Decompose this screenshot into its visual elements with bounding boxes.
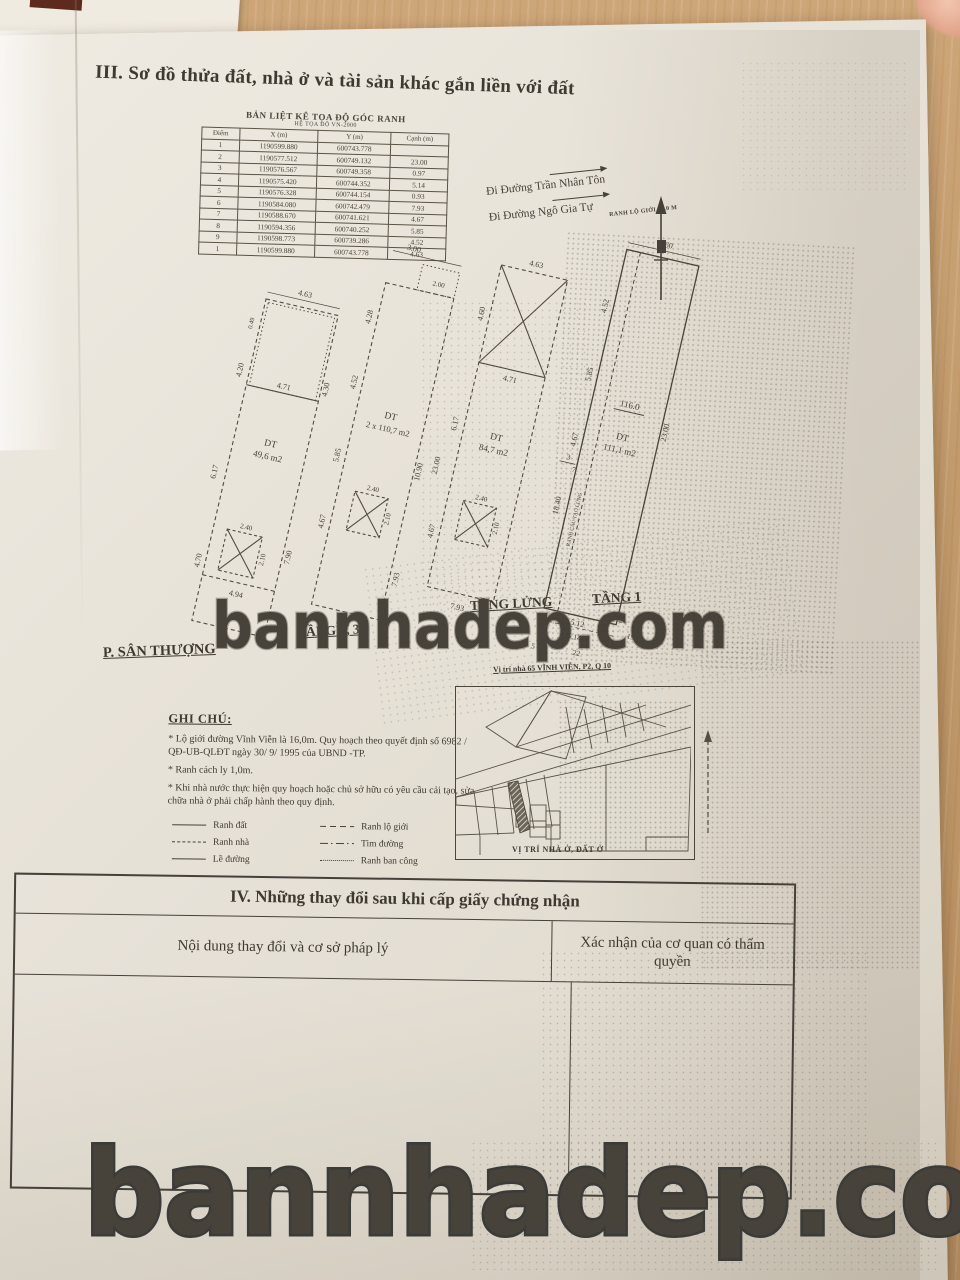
note-item: * Lộ giới đường Vĩnh Viễn là 16,0m. Quy … — [168, 733, 476, 762]
dim-label: 2.00 — [432, 279, 446, 290]
dim-label: 0.49 — [247, 317, 256, 330]
legend-item: Ranh nhà — [172, 833, 320, 852]
section4-col1-header: Nội dung thay đổi và cơ sở pháp lý — [15, 914, 552, 981]
area-label: 49,6 m2 — [252, 448, 283, 464]
dim-label: 4.71 — [276, 381, 292, 393]
dim-label: 4.28 — [363, 309, 375, 325]
photocopy-noise — [700, 640, 920, 970]
dim-label: 4.20 — [234, 362, 246, 378]
dim-label: 5.85 — [331, 447, 343, 463]
legend-item: Lề đường — [172, 850, 320, 869]
dim-label: 2.10 — [382, 512, 393, 526]
dim-label: 4.63 — [529, 258, 545, 270]
dim-label: 4.52 — [348, 374, 360, 390]
dim-label: 3.00 — [406, 243, 422, 255]
svg-text:bannhadep.com: bannhadep.com — [84, 1124, 960, 1262]
thin-line-icon — [172, 858, 206, 859]
dim-label: 4.67 — [316, 514, 328, 530]
note-item: * Ranh cách ly 1,0m. — [168, 764, 476, 780]
dim-label: 2.40 — [366, 484, 380, 495]
dotted-line-icon — [320, 860, 354, 861]
legend-item: Ranh đất — [172, 816, 320, 835]
dim-label: 4.30 — [320, 382, 332, 398]
long-dash-line-icon — [320, 826, 354, 828]
photocopy-noise — [558, 700, 688, 850]
solid-line-icon — [172, 824, 206, 825]
dim-label: 7.90 — [282, 550, 294, 566]
photocopy-noise — [740, 60, 910, 190]
dash-dot-line-icon — [320, 843, 354, 845]
dim-label: 2.40 — [239, 522, 253, 533]
dim-label: 2.10 — [257, 552, 268, 566]
notes-block: GHI CHÚ: * Lộ giới đường Vĩnh Viễn là 16… — [167, 710, 476, 815]
area-label: DT — [263, 438, 278, 451]
dashed-line-icon — [172, 841, 206, 842]
area-label: DT — [383, 411, 398, 424]
legend: Ranh đất Ranh nhà Lề đường Ranh lộ giới … — [172, 816, 503, 870]
area-label: 2 x 110,7 m2 — [365, 419, 411, 439]
watermark-bottom: bannhadep.com — [78, 1122, 960, 1272]
photo-of-document: III. Sơ đồ thửa đất, nhà ở và tài sản kh… — [0, 0, 960, 1280]
dim-label: 4.70 — [192, 552, 204, 568]
note-item: * Khi nhà nước thực hiện quy hoạch hoặc … — [168, 782, 476, 811]
dim-label: 4.63 — [297, 288, 313, 300]
dim-label: 6.17 — [208, 464, 220, 480]
